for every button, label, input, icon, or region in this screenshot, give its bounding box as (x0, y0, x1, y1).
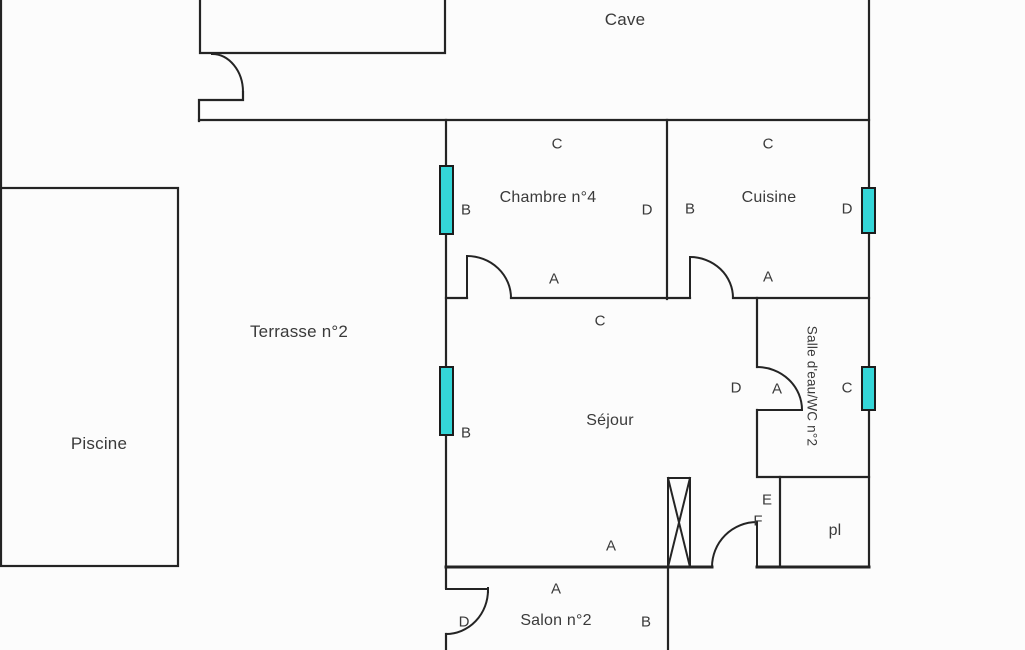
door-arc-f (712, 522, 757, 567)
door-arc-cuisine (690, 257, 733, 298)
window-marker-cuisine (862, 188, 875, 233)
walls (1, 0, 869, 650)
door-arc-salon (446, 590, 488, 634)
windows (440, 166, 875, 435)
window-marker-salle-deau (862, 367, 875, 410)
door-arc-cave (212, 54, 243, 92)
wall-salon (446, 567, 668, 650)
chimney-flue (668, 478, 690, 567)
floorplan-drawing (0, 0, 1025, 650)
wall-salle-deau (757, 298, 869, 477)
window-marker-chambre (440, 166, 453, 234)
wall-cave-box (200, 0, 445, 53)
door-arc-chambre (467, 256, 511, 298)
doors (212, 54, 802, 634)
wall-cave-door-jamb (199, 92, 243, 121)
door-arc-salle-deau (757, 367, 802, 410)
floorplan-page: CaveChambre n°4CuisineTerrasse n°2Piscin… (0, 0, 1025, 650)
window-marker-sejour (440, 367, 453, 435)
door-leaf-salon (446, 588, 488, 592)
chimney-cross-icon (668, 478, 690, 567)
pool-outline (1, 188, 178, 566)
